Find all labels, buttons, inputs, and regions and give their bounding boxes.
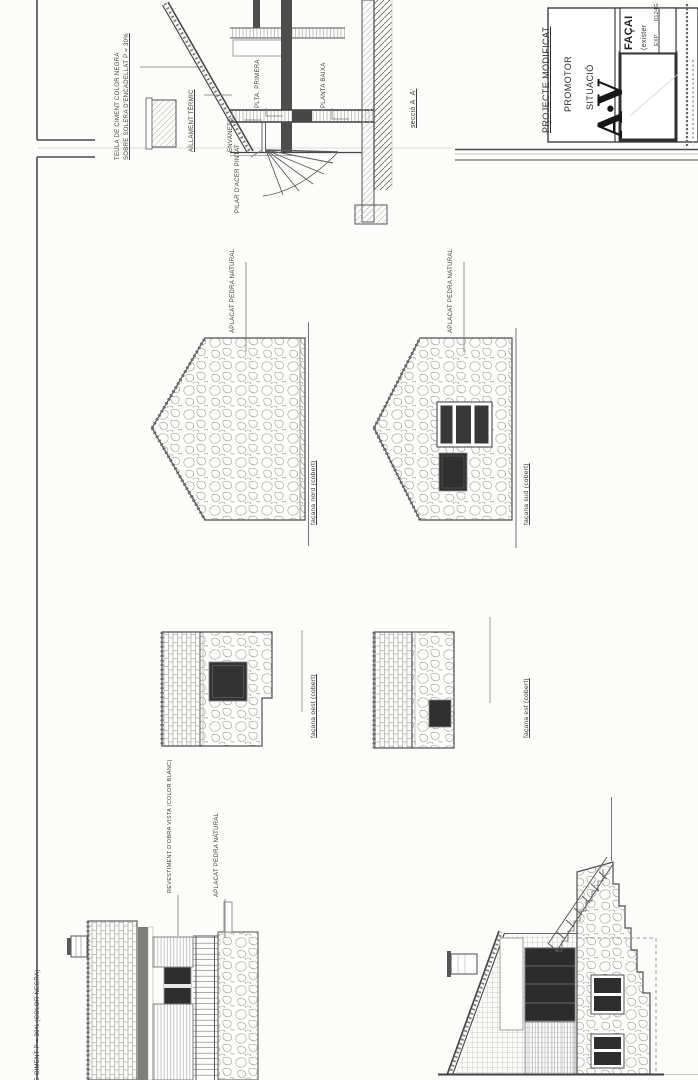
- exp-number: 0124G: [654, 3, 660, 21]
- section-title: secció A_A': [409, 89, 418, 128]
- section-note-steel-column: PILAR D'ACER PINTAT: [234, 144, 242, 213]
- architect-logo: A·V: [594, 82, 628, 138]
- scanned-drawing-sheet: TEULA DE CIMENT COLOR NEGRA SOBRE SOLERA…: [0, 0, 698, 1080]
- sud-label: façana sud (cobert): [523, 463, 531, 525]
- section-note-insulation: AÏLLAMENT TÈRMIC: [188, 89, 196, 152]
- elevation-est: [374, 617, 490, 748]
- section-chimney: [151, 100, 176, 147]
- section-drawing: [140, 0, 392, 224]
- bl-note-render: REVESTIMENT D'OBRA VISTA (COLOR BLANC): [166, 759, 174, 893]
- title-block-frame: [455, 4, 698, 160]
- section-note-roof-line2: SOBRE SOLERA D'ENCADELLAT P = 30%: [123, 33, 131, 160]
- section-retaining-wall: [362, 0, 374, 222]
- elevation-sud: [374, 262, 516, 548]
- title-block-promoter-row: PROMOTOR: [563, 56, 573, 112]
- doc-title: FAÇAI: [624, 16, 635, 51]
- doc-subtitle: (exister: [641, 25, 649, 50]
- exp-label: EXP: [654, 34, 660, 46]
- sud-window-dark: [439, 453, 467, 491]
- elevation-oest: [162, 630, 302, 746]
- oest-label: façana oest (cobert): [310, 674, 318, 738]
- elevation-oest-ampliada: [67, 895, 258, 1080]
- drawing-artwork: [0, 0, 698, 1080]
- roof-tiles: [88, 921, 137, 1080]
- section-terrain: [374, 0, 392, 190]
- section-note-roof-line1: TEULA DE CIMENT COLOR NEGRA: [114, 52, 122, 160]
- chimney: [71, 936, 87, 957]
- elevation-est-ampliada: [438, 797, 698, 1075]
- bl-note-roof-tiles: DE CIMENT P = 30% (COLOR NEGRA): [34, 969, 42, 1080]
- nord-note-stone: APLACAT PEDRA NATURAL: [229, 249, 237, 333]
- sud-note-stone: APLACAT PEDRA NATURAL: [447, 249, 455, 333]
- glazed-wall: [525, 948, 575, 1021]
- title-block-project-row: PROJECTE MODIFICAT: [541, 26, 551, 133]
- bl-note-stone: APLACAT PEDRA NATURAL: [213, 813, 221, 897]
- section-wall: [281, 0, 292, 110]
- section-footing: [355, 205, 387, 224]
- section-stairs: [263, 150, 338, 196]
- est-label: façana est (cobert): [523, 678, 531, 738]
- oest-window: [209, 662, 247, 701]
- est-window: [429, 700, 451, 727]
- chimney: [451, 954, 477, 974]
- section-note-ground-floor: PLANTA BAIXA: [320, 62, 328, 108]
- nord-label: façana nord (cobert): [310, 460, 318, 525]
- section-note-first-floor: PLTA. PRIMERA: [254, 59, 262, 108]
